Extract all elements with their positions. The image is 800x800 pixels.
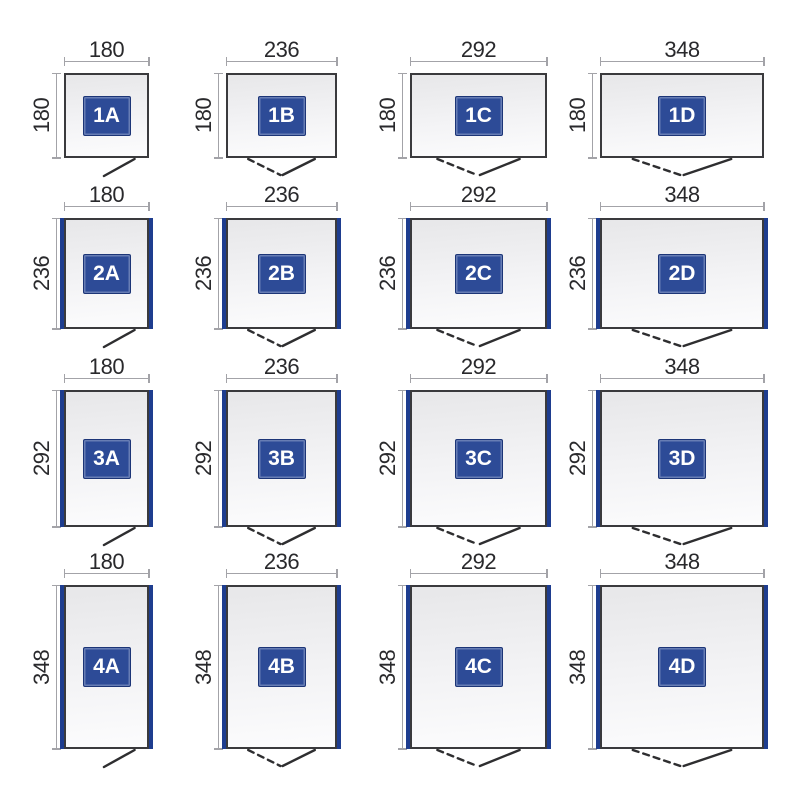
size-option-4A[interactable]: 1803484A [30,547,149,749]
width-dimension-line [64,61,149,63]
depth-dimension: 292 [30,390,64,527]
floor-plan-outline: 2C [410,218,547,329]
depth-dimension-line [402,73,404,158]
depth-dimension: 348 [376,585,410,749]
side-panel-right-icon [337,390,341,527]
side-panel-left-icon [406,218,410,329]
depth-dimension: 180 [566,73,600,158]
size-label-badge: 2B [258,254,306,294]
width-dimension-line [226,61,337,63]
width-dimension: 236 [226,547,337,585]
width-dimension-line [226,206,337,208]
side-panel-left-icon [222,390,226,527]
width-dimension-label: 292 [410,551,547,573]
cell-body: 2362A [30,218,149,329]
floor-plan-outline: 1C [410,73,547,158]
size-option-3A[interactable]: 1802923A [30,352,149,527]
floor-plan-outline: 2D [600,218,764,329]
depth-dimension-line [402,585,404,749]
depth-dimension: 180 [192,73,226,158]
size-label-badge: 3D [658,439,706,479]
depth-dimension-label: 236 [567,218,589,329]
width-dimension: 180 [64,35,149,73]
cell-body: 3484D [566,585,764,749]
side-panel-left-icon [222,218,226,329]
size-option-3D[interactable]: 3482923D [566,352,764,527]
floor-plan-outline: 3D [600,390,764,527]
depth-dimension-line [56,390,58,527]
width-dimension-label: 292 [410,356,547,378]
depth-dimension: 236 [192,218,226,329]
depth-dimension-label: 292 [31,390,53,527]
width-dimension-label: 292 [410,39,547,61]
width-dimension: 292 [410,35,547,73]
width-dimension-label: 236 [226,551,337,573]
depth-dimension-line [218,73,220,158]
size-option-3C[interactable]: 2922923C [376,352,547,527]
floor-plan-outline: 1A [64,73,149,158]
floor-plan-outline: 3B [226,390,337,527]
size-label-badge: 4A [83,647,131,687]
width-dimension: 180 [64,180,149,218]
depth-dimension: 180 [30,73,64,158]
width-dimension: 180 [64,547,149,585]
depth-dimension-line [56,218,58,329]
width-dimension-label: 292 [410,184,547,206]
width-dimension-line [410,573,547,575]
width-dimension-line [64,573,149,575]
depth-dimension-label: 292 [377,390,399,527]
size-option-2A[interactable]: 1802362A [30,180,149,329]
side-panel-right-icon [547,585,551,749]
double-door-swing-icon [410,527,547,549]
depth-dimension-label: 180 [377,73,399,158]
depth-dimension-line [402,390,404,527]
depth-dimension: 292 [566,390,600,527]
cell-body: 3484A [30,585,149,749]
depth-dimension: 348 [566,585,600,749]
depth-dimension: 236 [376,218,410,329]
width-dimension-line [600,61,764,63]
floor-plan-outline: 2A [64,218,149,329]
floor-plan-outline: 4D [600,585,764,749]
size-option-2B[interactable]: 2362362B [192,180,337,329]
side-panel-right-icon [149,218,153,329]
depth-dimension-line [592,218,594,329]
side-panel-right-icon [764,218,768,329]
width-dimension: 180 [64,352,149,390]
width-dimension-label: 180 [64,39,149,61]
cell-body: 1801A [30,73,149,158]
side-panel-left-icon [596,390,600,527]
size-label-badge: 2D [658,254,706,294]
depth-dimension-label: 236 [193,218,215,329]
floor-plan-outline: 4B [226,585,337,749]
size-option-4B[interactable]: 2363484B [192,547,337,749]
width-dimension-line [410,206,547,208]
size-option-1C[interactable]: 2921801C [376,35,547,158]
side-panel-left-icon [222,585,226,749]
double-door-swing-icon [600,329,764,351]
depth-dimension-label: 236 [31,218,53,329]
width-dimension-line [600,206,764,208]
size-option-3B[interactable]: 2362923B [192,352,337,527]
cell-body: 2362D [566,218,764,329]
width-dimension-label: 348 [600,184,764,206]
depth-dimension: 348 [30,585,64,749]
double-door-swing-icon [226,329,337,351]
side-panel-left-icon [60,218,64,329]
size-label-badge: 3C [455,439,503,479]
floor-plan-outline: 3C [410,390,547,527]
width-dimension-line [600,573,764,575]
size-label-badge: 1B [258,96,306,136]
side-panel-right-icon [337,585,341,749]
double-door-swing-icon [410,158,547,180]
cell-body: 2923B [192,390,337,527]
side-panel-right-icon [149,390,153,527]
double-door-swing-icon [600,527,764,549]
side-panel-right-icon [337,218,341,329]
depth-dimension: 236 [566,218,600,329]
cell-body: 1801D [566,73,764,158]
depth-dimension-label: 348 [567,585,589,749]
width-dimension-label: 348 [600,551,764,573]
depth-dimension-label: 348 [377,585,399,749]
floor-plan-outline: 1D [600,73,764,158]
side-panel-left-icon [60,585,64,749]
cell-body: 2362C [376,218,547,329]
depth-dimension: 348 [192,585,226,749]
depth-dimension-label: 180 [567,73,589,158]
width-dimension-label: 236 [226,39,337,61]
size-label-badge: 1A [83,96,131,136]
double-door-swing-icon [226,527,337,549]
floor-plan-outline: 1B [226,73,337,158]
side-panel-right-icon [764,390,768,527]
side-panel-left-icon [596,585,600,749]
size-label-badge: 4C [455,647,503,687]
single-door-swing-icon [64,527,149,549]
width-dimension-label: 236 [226,184,337,206]
side-panel-right-icon [547,390,551,527]
depth-dimension-line [592,585,594,749]
double-door-swing-icon [226,749,337,771]
width-dimension-label: 348 [600,39,764,61]
width-dimension: 236 [226,35,337,73]
width-dimension: 292 [410,547,547,585]
cell-body: 2923A [30,390,149,527]
cell-body: 2923C [376,390,547,527]
depth-dimension-label: 348 [193,585,215,749]
size-option-2D[interactable]: 3482362D [566,180,764,329]
depth-dimension-label: 292 [193,390,215,527]
size-option-1A[interactable]: 1801801A [30,35,149,158]
size-label-badge: 1C [455,96,503,136]
size-label-badge: 4B [258,647,306,687]
double-door-swing-icon [410,329,547,351]
width-dimension-line [226,378,337,380]
depth-dimension-line [56,585,58,749]
depth-dimension-line [218,585,220,749]
width-dimension: 348 [600,352,764,390]
width-dimension-line [226,573,337,575]
size-label-badge: 1D [658,96,706,136]
width-dimension: 292 [410,180,547,218]
side-panel-left-icon [406,390,410,527]
floor-plan-outline: 2B [226,218,337,329]
cell-body: 3484B [192,585,337,749]
cell-body: 1801B [192,73,337,158]
depth-dimension-line [402,218,404,329]
single-door-swing-icon [64,158,149,180]
double-door-swing-icon [410,749,547,771]
depth-dimension-label: 180 [193,73,215,158]
size-option-4D[interactable]: 3483484D [566,547,764,749]
depth-dimension: 292 [376,390,410,527]
cell-body: 2923D [566,390,764,527]
size-option-2C[interactable]: 2922362C [376,180,547,329]
floor-plan-outline: 4C [410,585,547,749]
size-label-badge: 3B [258,439,306,479]
width-dimension: 292 [410,352,547,390]
width-dimension: 236 [226,352,337,390]
side-panel-left-icon [596,218,600,329]
depth-dimension-line [218,390,220,527]
depth-dimension-line [56,73,58,158]
double-door-swing-icon [600,749,764,771]
side-panel-right-icon [149,585,153,749]
width-dimension-label: 180 [64,551,149,573]
width-dimension-line [410,378,547,380]
side-panel-left-icon [60,390,64,527]
width-dimension: 348 [600,180,764,218]
size-label-badge: 4D [658,647,706,687]
depth-dimension-label: 236 [377,218,399,329]
depth-dimension-line [592,390,594,527]
width-dimension-line [600,378,764,380]
side-panel-right-icon [547,218,551,329]
size-label-badge: 2C [455,254,503,294]
depth-dimension-label: 348 [31,585,53,749]
width-dimension: 236 [226,180,337,218]
width-dimension: 348 [600,35,764,73]
size-option-1D[interactable]: 3481801D [566,35,764,158]
side-panel-right-icon [764,585,768,749]
size-matrix: 1801801A2361801B2921801C3481801D1802362A… [0,0,800,800]
depth-dimension-line [218,218,220,329]
floor-plan-outline: 4A [64,585,149,749]
single-door-swing-icon [64,329,149,351]
cell-body: 1801C [376,73,547,158]
depth-dimension-line [592,73,594,158]
double-door-swing-icon [600,158,764,180]
width-dimension-line [410,61,547,63]
size-label-badge: 3A [83,439,131,479]
floor-plan-outline: 3A [64,390,149,527]
cell-body: 3484C [376,585,547,749]
depth-dimension: 180 [376,73,410,158]
size-label-badge: 2A [83,254,131,294]
depth-dimension-label: 180 [31,73,53,158]
depth-dimension-label: 292 [567,390,589,527]
size-option-4C[interactable]: 2923484C [376,547,547,749]
depth-dimension: 292 [192,390,226,527]
width-dimension: 348 [600,547,764,585]
size-option-1B[interactable]: 2361801B [192,35,337,158]
width-dimension-label: 348 [600,356,764,378]
width-dimension-label: 180 [64,184,149,206]
width-dimension-label: 236 [226,356,337,378]
width-dimension-label: 180 [64,356,149,378]
single-door-swing-icon [64,749,149,771]
width-dimension-line [64,378,149,380]
side-panel-left-icon [406,585,410,749]
double-door-swing-icon [226,158,337,180]
depth-dimension: 236 [30,218,64,329]
cell-body: 2362B [192,218,337,329]
width-dimension-line [64,206,149,208]
